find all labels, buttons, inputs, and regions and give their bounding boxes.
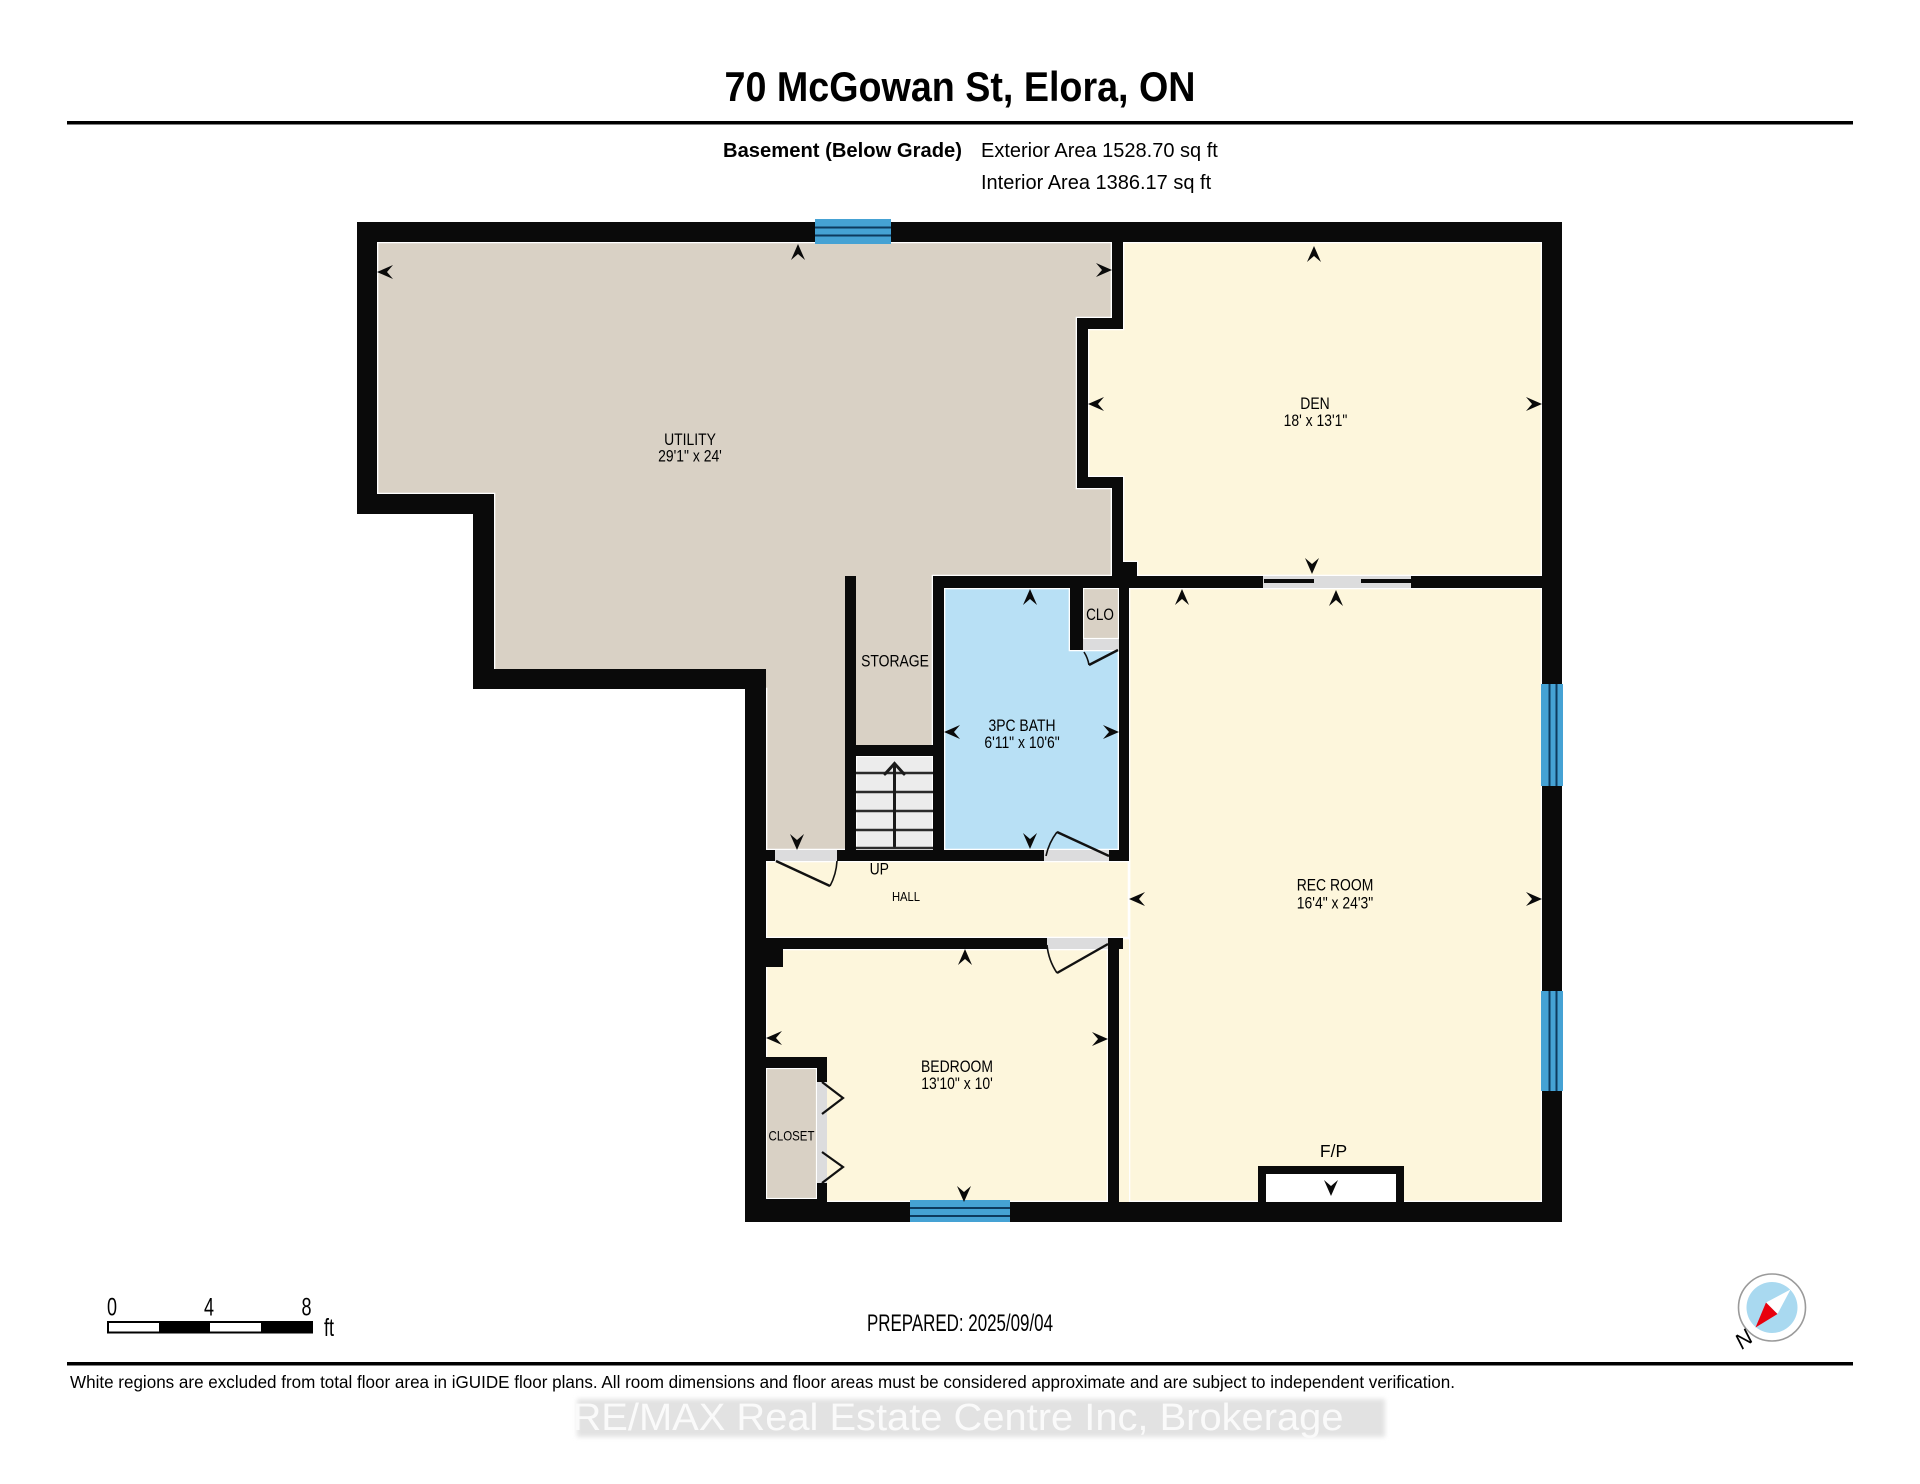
svg-text:PREPARED: 2025/09/04: PREPARED: 2025/09/04 [867, 1310, 1053, 1337]
svg-text:UP: UP [870, 860, 889, 878]
svg-text:CLO: CLO [1086, 606, 1114, 625]
svg-text:REC ROOM: REC ROOM [1297, 876, 1374, 895]
svg-text:F/P: F/P [1320, 1141, 1347, 1161]
svg-text:RE/MAX Real Estate Centre Inc,: RE/MAX Real Estate Centre Inc, Brokerage [573, 1397, 1344, 1439]
svg-text:4: 4 [204, 1293, 214, 1322]
svg-text:3PC BATH: 3PC BATH [988, 717, 1055, 736]
svg-text:0: 0 [107, 1293, 117, 1322]
svg-text:Exterior Area 1528.70 sq ft: Exterior Area 1528.70 sq ft [981, 140, 1218, 162]
svg-text:18' x 13'1": 18' x 13'1" [1284, 412, 1348, 431]
svg-text:8: 8 [301, 1293, 311, 1322]
svg-text:16'4" x 24'3": 16'4" x 24'3" [1297, 894, 1373, 913]
svg-text:White regions are excluded fro: White regions are excluded from total fl… [70, 1372, 1455, 1392]
svg-text:Interior Area 1386.17 sq ft: Interior Area 1386.17 sq ft [981, 172, 1212, 194]
svg-text:DEN: DEN [1300, 395, 1329, 414]
svg-text:BEDROOM: BEDROOM [921, 1058, 993, 1077]
svg-text:6'11" x 10'6": 6'11" x 10'6" [984, 734, 1059, 753]
svg-text:29'1" x 24': 29'1" x 24' [658, 447, 722, 466]
svg-text:ft: ft [324, 1313, 334, 1342]
svg-text:CLOSET: CLOSET [769, 1127, 815, 1143]
svg-text:13'10" x 10': 13'10" x 10' [921, 1075, 992, 1094]
svg-text:70 McGowan St, Elora, ON: 70 McGowan St, Elora, ON [725, 63, 1196, 110]
svg-text:Basement (Below Grade): Basement (Below Grade) [723, 140, 962, 162]
svg-text:STORAGE: STORAGE [861, 652, 929, 671]
svg-text:HALL: HALL [892, 889, 920, 904]
